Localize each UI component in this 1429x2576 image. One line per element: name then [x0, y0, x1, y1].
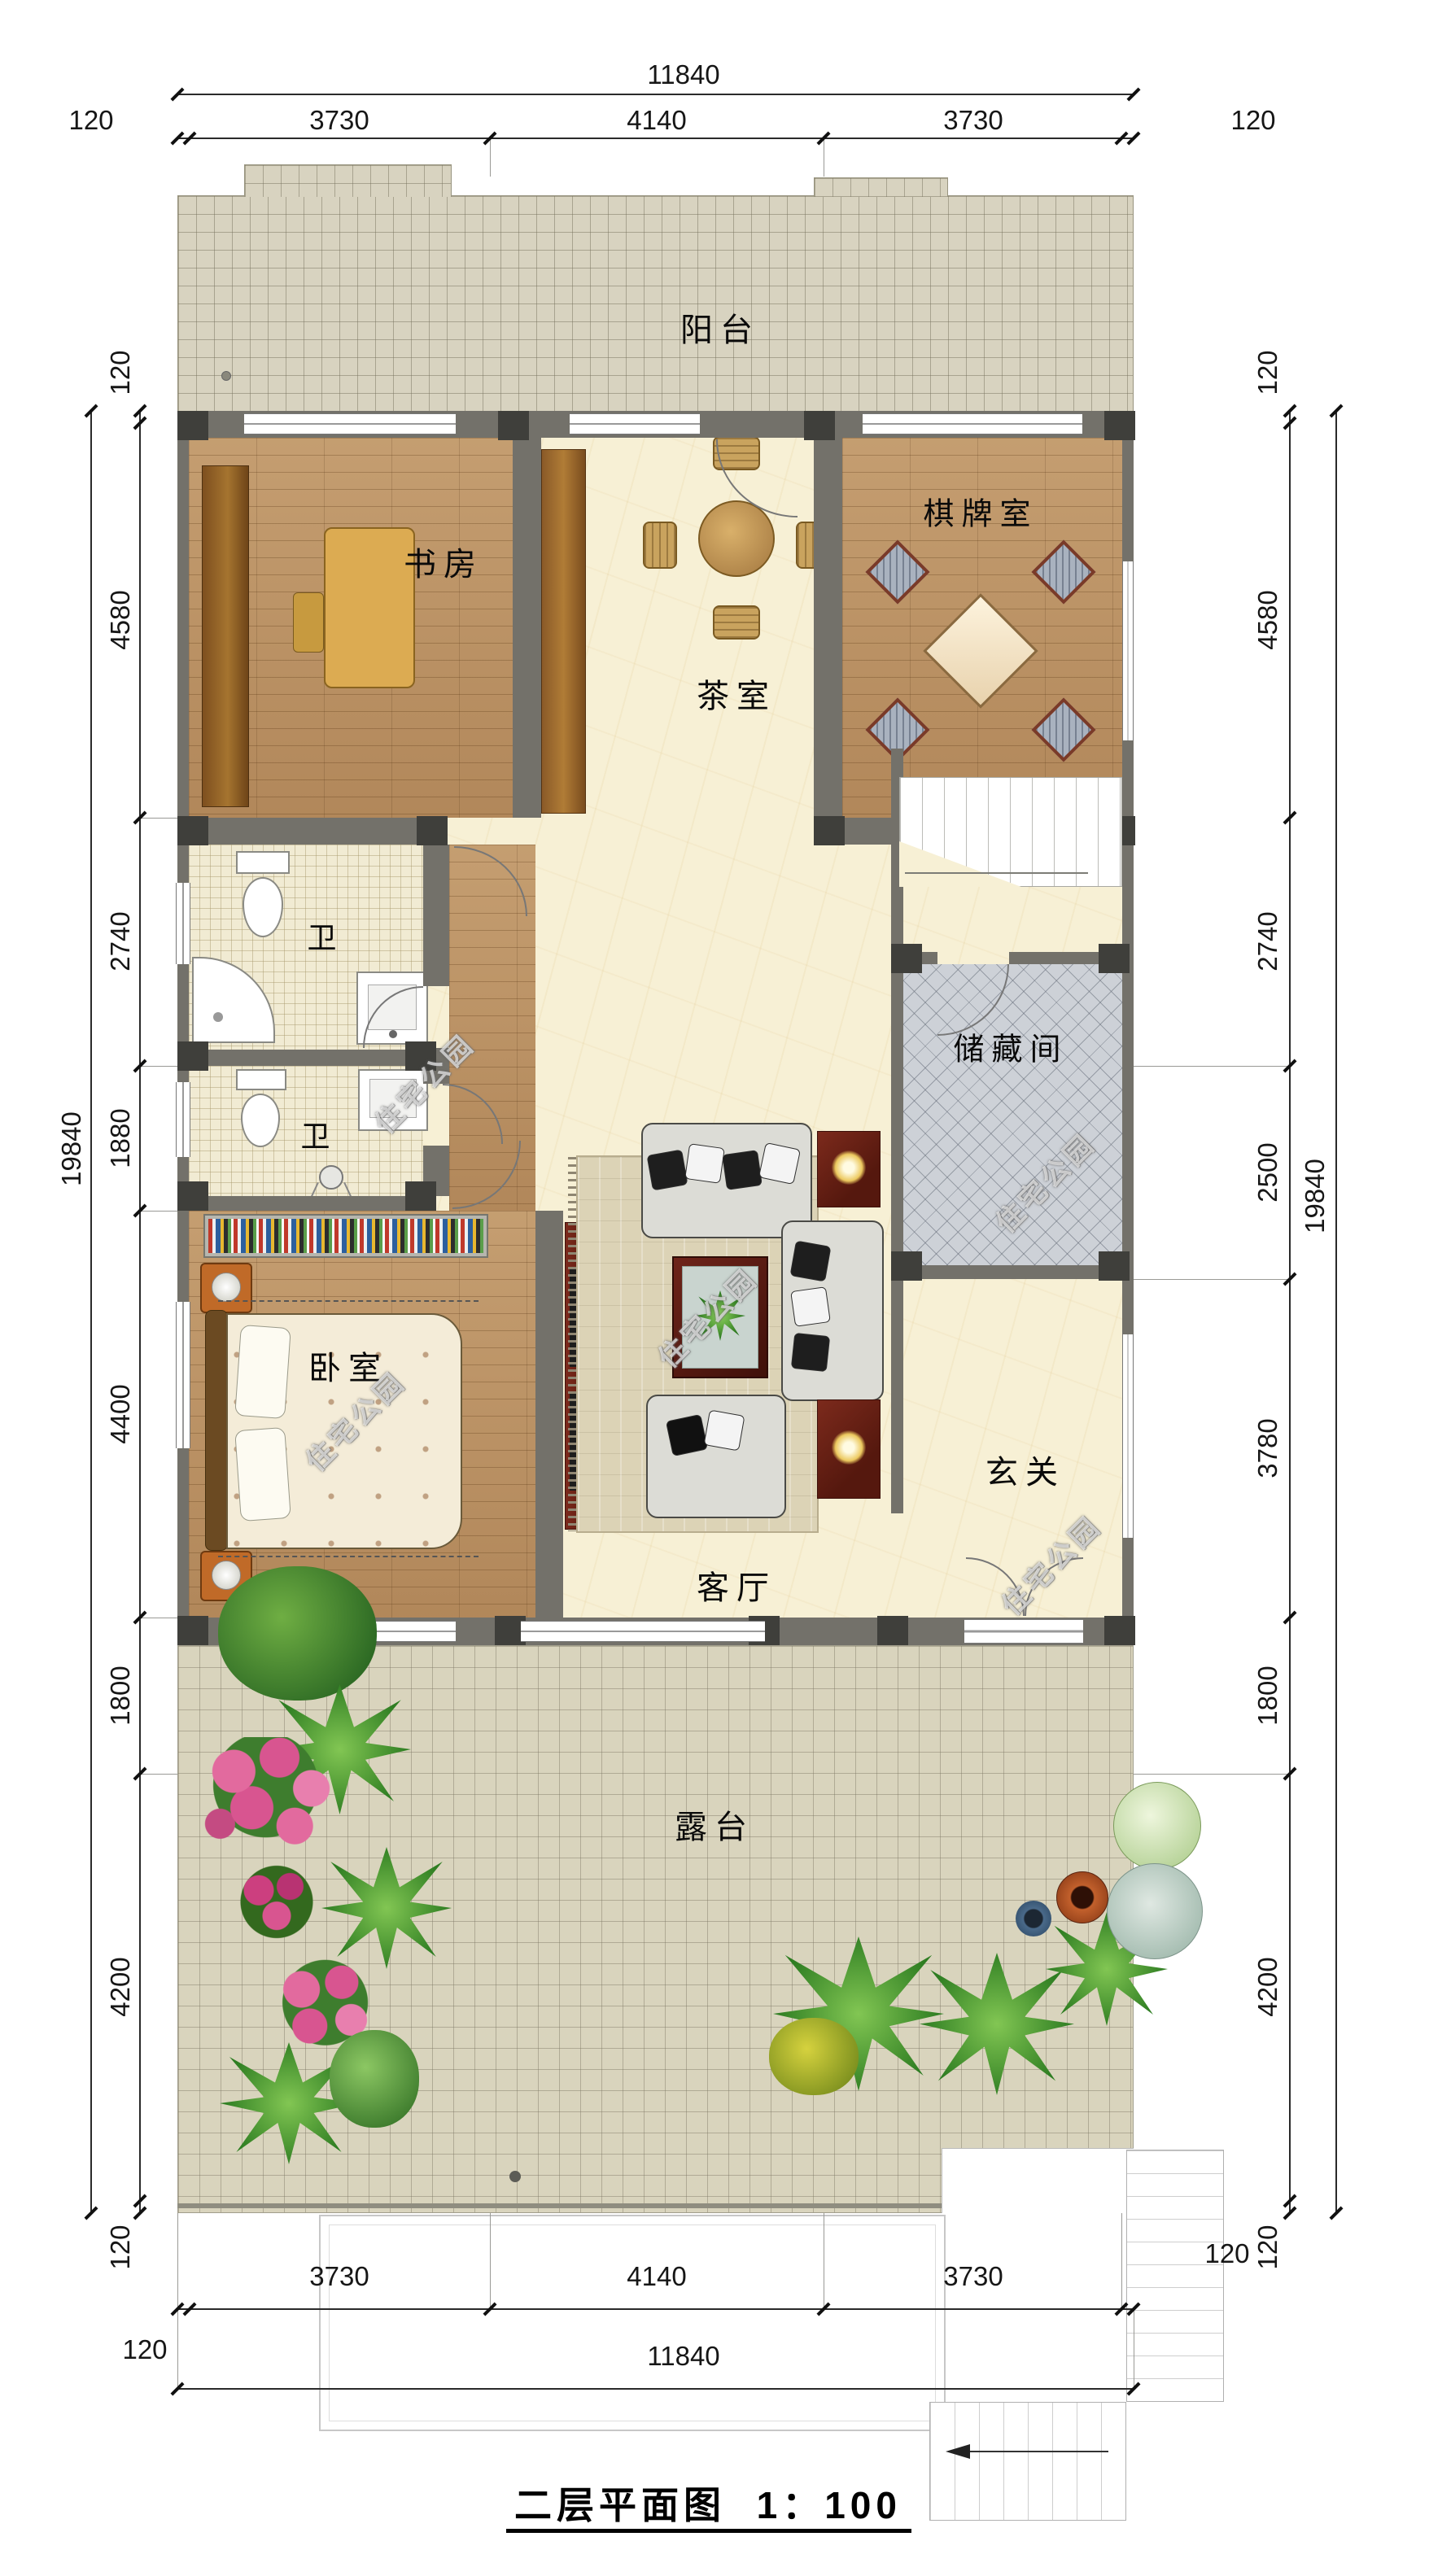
wall-segment: [535, 1211, 563, 1618]
terrace-drain: [509, 2171, 521, 2182]
dim-label: 1800: [105, 1666, 136, 1725]
side-table-lamp: [832, 1150, 866, 1185]
toilet-tank: [236, 1069, 286, 1090]
shrub: [769, 2018, 859, 2095]
dim-line: [177, 138, 1134, 139]
dim-line: [139, 411, 141, 2213]
dim-label: 1800: [1252, 1666, 1283, 1725]
column: [1099, 944, 1130, 973]
dim-label: 2500: [1252, 1142, 1283, 1202]
dim-line: [1121, 2213, 1122, 2309]
sofa-pillow: [758, 1142, 801, 1185]
sofa-pillow: [704, 1410, 745, 1452]
dim-line: [1134, 2309, 1134, 2389]
topiary-tree: [1107, 1863, 1203, 1959]
terrace-corner-cut: [942, 2148, 1134, 2213]
column: [177, 816, 208, 845]
window: [1122, 1334, 1134, 1538]
dim-label: 3730: [309, 2261, 369, 2292]
sofa-pillow: [790, 1241, 832, 1282]
dim-label: 4580: [1252, 590, 1283, 649]
column: [1104, 411, 1135, 440]
column: [891, 1251, 922, 1281]
dim-line: [177, 2308, 1134, 2310]
drawing-title: 二层平面图 1：100: [514, 2476, 902, 2530]
wall-segment: [177, 411, 189, 1645]
room-label-bath1: 卫: [307, 915, 343, 957]
dim-line: [140, 1066, 177, 1067]
balcony-drain: [221, 371, 231, 381]
dim-line: [490, 2213, 491, 2309]
dim-label: 2740: [105, 911, 136, 971]
dim-label: 120: [105, 2225, 136, 2269]
dim-line: [1134, 1279, 1289, 1280]
room-label-terrace: 露台: [675, 1801, 754, 1848]
sofa-pillow: [666, 1414, 708, 1456]
flower-cluster: [203, 1737, 342, 1851]
dim-line: [824, 2213, 824, 2309]
title-text: 二层平面图: [514, 2484, 726, 2526]
topiary-tree: [1113, 1782, 1201, 1870]
stairs-rail: [905, 872, 1088, 874]
window: [176, 1082, 190, 1157]
column: [891, 944, 922, 973]
pillow: [234, 1427, 291, 1522]
sofa-pillow: [791, 1333, 830, 1372]
nightstand-lamp: [212, 1273, 241, 1302]
study-tea-wood-door: [541, 449, 586, 814]
column: [1104, 1616, 1135, 1645]
room-label-balcony: 阳台: [680, 303, 760, 351]
dim-label: 4400: [105, 1384, 136, 1443]
window: [863, 413, 1082, 434]
study-wardrobe: [202, 465, 249, 807]
dim-line: [90, 411, 92, 2213]
wall-segment: [891, 1265, 1134, 1279]
sofa-pillow: [647, 1150, 688, 1191]
dim-label: 120: [105, 350, 136, 395]
dim-line: [490, 140, 491, 177]
column: [177, 411, 208, 440]
dim-line: [177, 2388, 1134, 2390]
stairs-direction-line: [970, 2451, 1108, 2452]
title-scale: 1：100: [757, 2484, 902, 2526]
window: [244, 413, 456, 434]
column: [417, 816, 448, 845]
shower-head: [319, 1165, 343, 1190]
rug-fringe: [568, 1157, 576, 1531]
lower-roof-outline-inner: [329, 2225, 936, 2421]
wall-segment: [189, 1050, 423, 1066]
plant-pot: [1056, 1871, 1108, 1923]
dim-label: 120: [1252, 350, 1283, 395]
stairs-direction-arrow: [946, 2444, 970, 2459]
title-underline: [506, 2529, 911, 2533]
dim-label: 2740: [1252, 911, 1283, 971]
window: [176, 883, 190, 964]
dim-label: 19840: [1300, 1159, 1331, 1233]
dim-label: 120: [68, 105, 113, 136]
dim-label: 120: [1204, 2238, 1249, 2269]
toilet-tank: [236, 851, 290, 874]
window: [964, 1619, 1083, 1644]
tea-chair-south: [713, 605, 760, 640]
column: [177, 1181, 208, 1211]
dim-line: [140, 818, 177, 819]
balcony-floor-step: [244, 164, 452, 197]
column: [177, 1616, 208, 1645]
shrub: [218, 1566, 377, 1701]
dim-line: [177, 2309, 178, 2389]
exterior-stairs-side: [1126, 2150, 1224, 2402]
shower-drain: [213, 1012, 223, 1022]
nightstand-lamp: [212, 1561, 241, 1590]
column: [814, 816, 845, 845]
window: [570, 413, 700, 434]
dim-label: 11840: [647, 59, 719, 90]
dim-line: [177, 94, 1134, 95]
dim-label: 3780: [1252, 1418, 1283, 1478]
dim-label: 4140: [627, 2261, 686, 2292]
tea-table: [698, 500, 775, 577]
room-label-tea: 茶室: [697, 670, 776, 717]
dim-line: [140, 1211, 177, 1212]
dim-line: [177, 2213, 178, 2309]
dim-label: 120: [1252, 2225, 1283, 2269]
bookshelf-books: [208, 1219, 483, 1253]
column: [405, 1181, 436, 1211]
dim-label: 120: [1230, 105, 1275, 136]
wall-segment: [423, 845, 449, 986]
dim-line: [1289, 411, 1291, 2213]
tea-chair-west: [643, 522, 677, 569]
wall-segment: [814, 438, 842, 818]
room-label-living: 客厅: [697, 1561, 776, 1609]
wall-segment: [513, 438, 541, 818]
dim-line: [824, 140, 824, 177]
window: [1122, 561, 1134, 740]
plant-pot: [1016, 1901, 1051, 1936]
column: [498, 411, 529, 440]
study-desk: [324, 527, 415, 688]
dim-label: 11840: [647, 2341, 719, 2372]
dim-label: 4140: [627, 105, 686, 136]
room-label-study: 书房: [404, 538, 483, 585]
room-label-foyer: 玄关: [985, 1446, 1065, 1493]
dim-label: 1880: [105, 1108, 136, 1168]
sofa-pillow: [790, 1286, 831, 1327]
pillow: [234, 1325, 291, 1419]
window: [176, 1302, 190, 1448]
dim-line: [140, 1618, 177, 1618]
dim-label: 4580: [105, 590, 136, 649]
dim-line: [1134, 1774, 1289, 1775]
flower-cluster: [232, 1863, 321, 1941]
balcony-floor: [177, 195, 1134, 412]
bed-curtain-track: [218, 1556, 479, 1557]
column: [1099, 1251, 1130, 1281]
exterior-stairs-bottom: [929, 2402, 1126, 2521]
shrub: [330, 2030, 419, 2128]
balcony-floor-step: [814, 177, 948, 197]
room-label-storage: 储藏间: [953, 1024, 1068, 1069]
dim-label: 3730: [943, 2261, 1003, 2292]
window: [521, 1621, 765, 1642]
dim-line: [1134, 1066, 1289, 1067]
wall-segment: [177, 818, 446, 845]
sofa-pillow: [722, 1150, 763, 1190]
column: [177, 1041, 208, 1071]
dim-line: [1335, 411, 1337, 2213]
dim-label: 4200: [105, 1957, 136, 2016]
wall-segment: [189, 1196, 423, 1211]
column: [804, 411, 835, 440]
floor-plan-sheet: 阳台 书房 茶室 棋牌室 卫 卫 储藏间 卧室 客厅 玄关 露台 住宅公园 住宅…: [0, 0, 1429, 2576]
dim-label: 3730: [943, 105, 1003, 136]
study-chair: [293, 592, 324, 653]
room-label-chess: 棋牌室: [923, 489, 1038, 534]
room-label-bath2: 卫: [300, 1113, 337, 1155]
dim-label: 3730: [309, 105, 369, 136]
column: [877, 1616, 908, 1645]
dim-label: 120: [122, 2334, 167, 2365]
bed-curtain-track: [218, 1300, 479, 1302]
dim-label: 4200: [1252, 1957, 1283, 2016]
sofa-pillow: [684, 1143, 725, 1184]
side-table-lamp: [832, 1430, 866, 1465]
dim-line: [140, 1774, 177, 1775]
bed-headboard: [205, 1310, 228, 1551]
dim-label: 19840: [56, 1111, 87, 1186]
